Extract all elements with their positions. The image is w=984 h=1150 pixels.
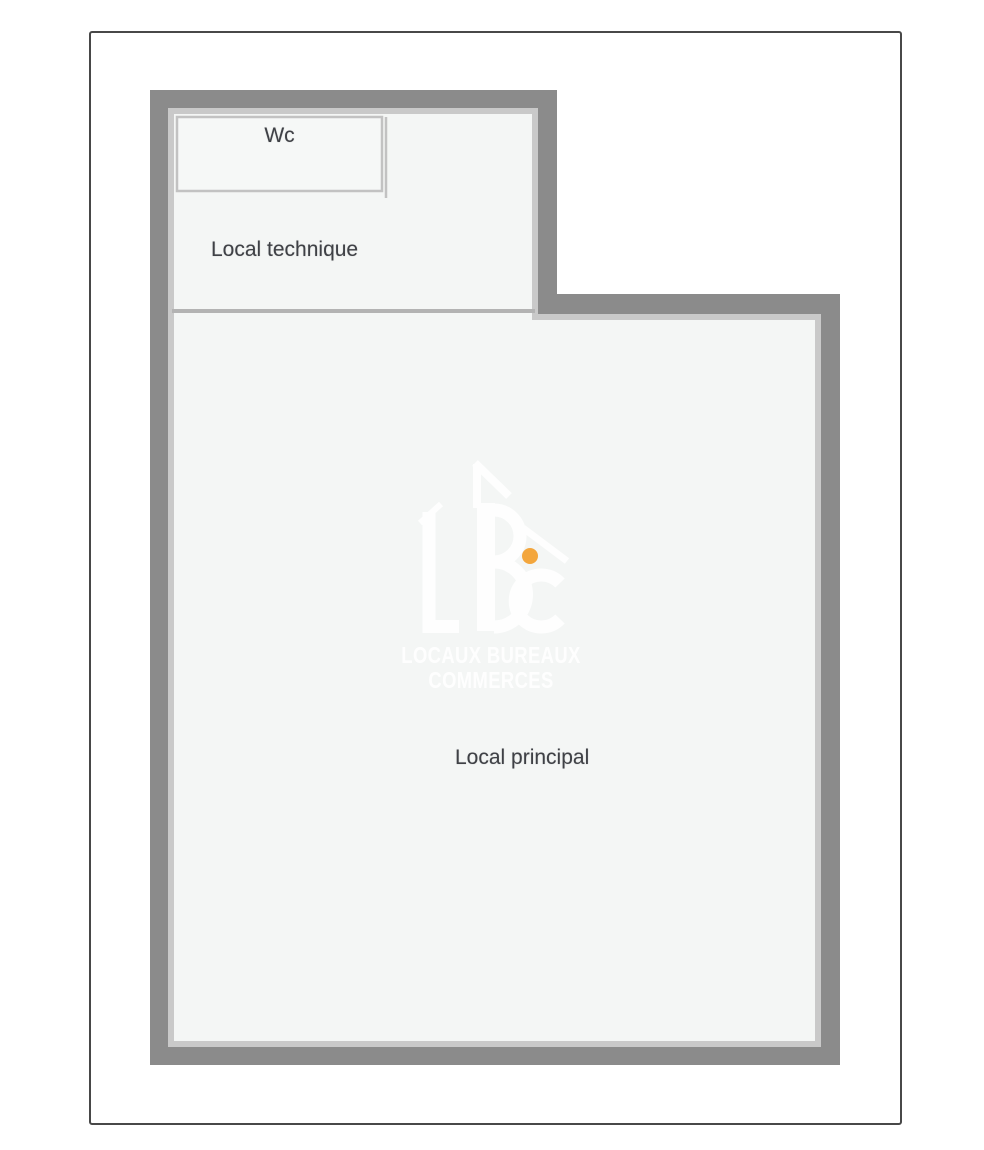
room-label-wc: Wc	[177, 124, 382, 148]
room-label-local-principal: Local principal	[455, 746, 589, 770]
logo-accent-dot	[522, 548, 538, 564]
page: Wc Local technique Local principal LOCAU…	[0, 0, 984, 1150]
watermark-line1: LOCAUX BUREAUX	[371, 643, 611, 668]
watermark-line2: COMMERCES	[371, 668, 611, 693]
room-label-local-technique: Local technique	[211, 238, 358, 262]
floorplan-svg	[0, 0, 984, 1150]
watermark-wordmark: LOCAUX BUREAUX COMMERCES	[371, 643, 611, 693]
